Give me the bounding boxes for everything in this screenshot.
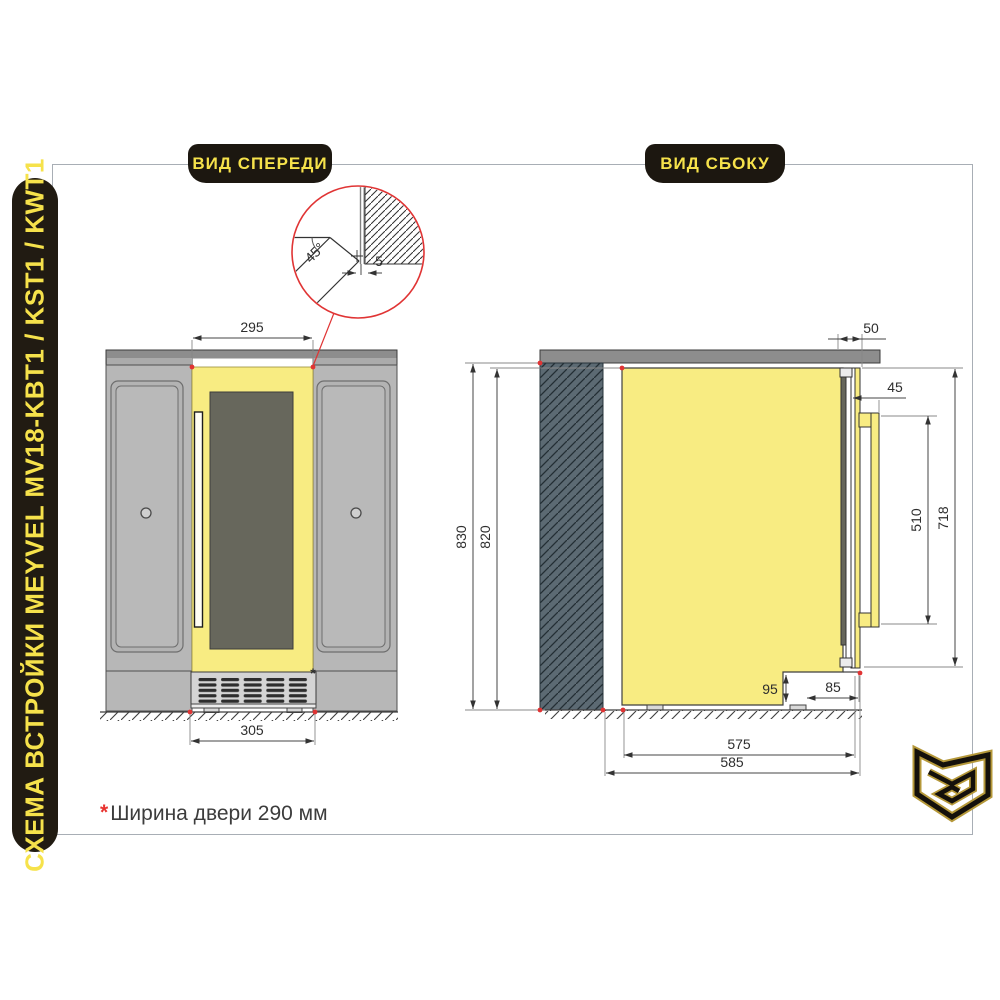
front-view-badge-label: ВИД СПЕРЕДИ [192, 154, 327, 174]
scheme-title: СХЕМА ВСТРОЙКИ MEYVEL MV18-KBT1 / KST1 /… [20, 158, 51, 872]
front-view-panel [52, 164, 444, 835]
installation-scheme-page: СХЕМА ВСТРОЙКИ MEYVEL MV18-KBT1 / KST1 /… [0, 0, 1000, 1000]
side-view-badge-label: ВИД СБОКУ [660, 154, 769, 174]
door-width-footnote: *Ширина двери 290 мм [100, 802, 328, 826]
footnote-asterisk: * [100, 801, 108, 824]
footnote-text: Ширина двери 290 мм [110, 802, 327, 825]
scheme-title-sidebar: СХЕМА ВСТРОЙКИ MEYVEL MV18-KBT1 / KST1 /… [12, 178, 58, 852]
front-view-badge: ВИД СПЕРЕДИ [188, 144, 332, 183]
side-view-badge: ВИД СБОКУ [645, 144, 785, 183]
side-view-panel [443, 164, 973, 835]
